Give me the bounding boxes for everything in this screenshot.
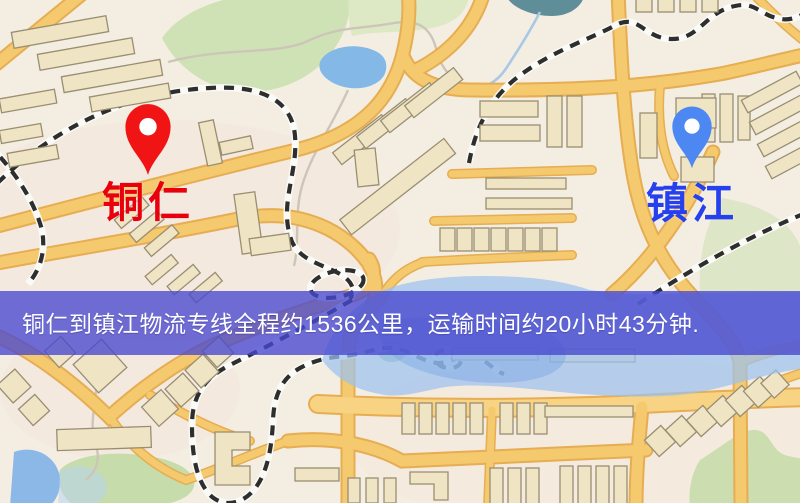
destination-marker[interactable]: 镇江 (665, 102, 719, 170)
origin-pin-icon[interactable] (117, 99, 179, 177)
route-info-banner: 铜仁到镇江物流专线全程约1536公里，运输时间约20小时43分钟. (0, 291, 800, 355)
pin-shape (125, 104, 170, 175)
origin-marker[interactable]: 铜仁 (117, 99, 179, 177)
destination-label: 镇江 (617, 183, 767, 225)
pin-shape (672, 106, 711, 168)
pin-hole (139, 118, 156, 135)
pin-hole (684, 119, 699, 134)
route-info-text: 铜仁到镇江物流专线全程约1536公里，运输时间约20小时43分钟. (22, 305, 699, 339)
map-canvas: 铜仁到镇江物流专线全程约1536公里，运输时间约20小时43分钟. 铜仁 镇江 (0, 0, 800, 503)
map-background (0, 0, 800, 503)
destination-pin-icon[interactable] (665, 102, 719, 170)
origin-label: 铜仁 (73, 182, 223, 224)
